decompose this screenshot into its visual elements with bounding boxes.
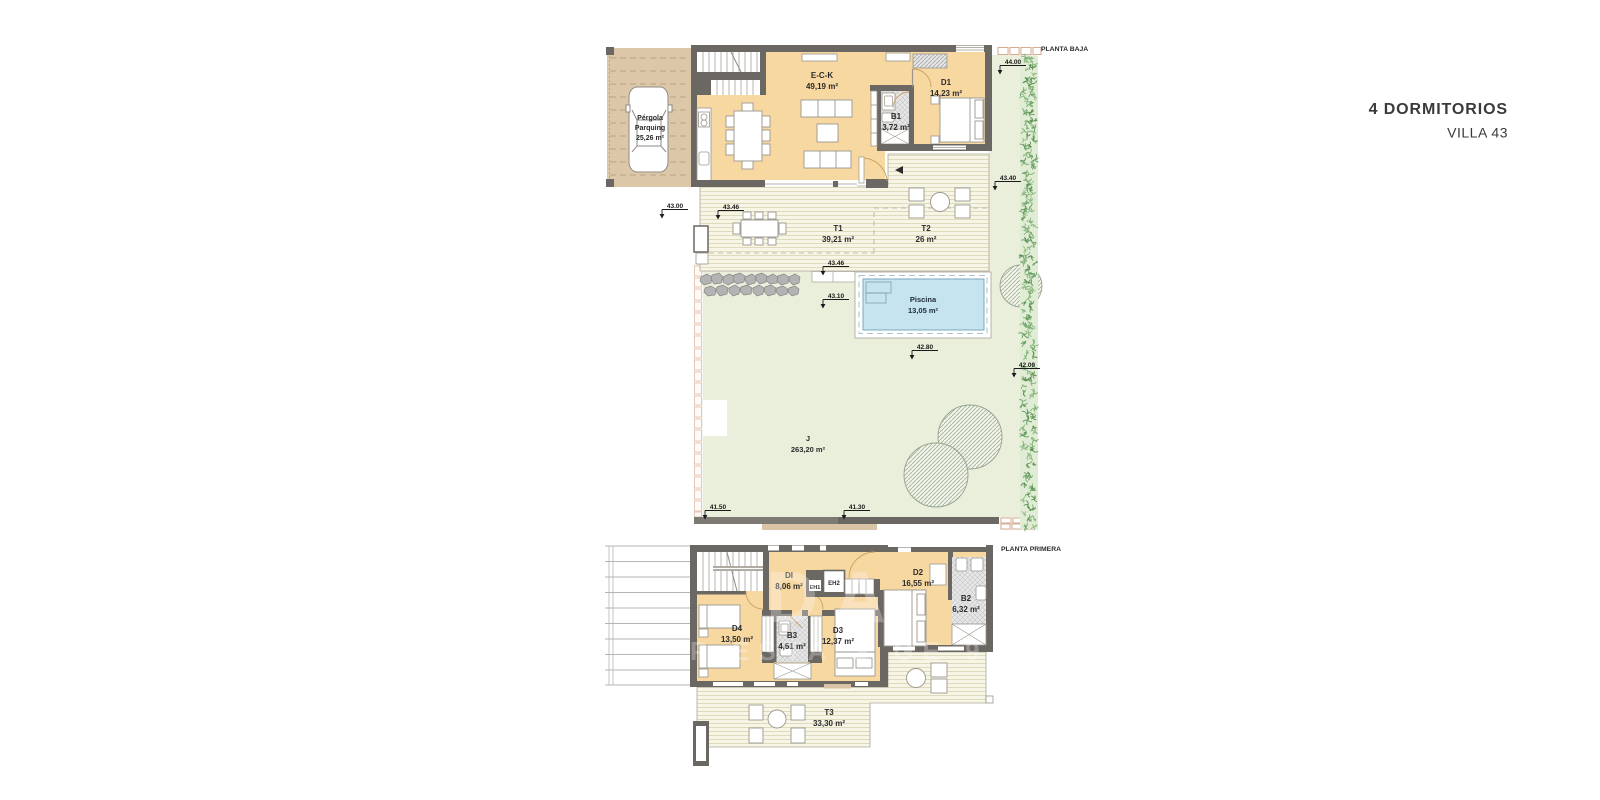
- svg-text:B2: B2: [961, 594, 972, 603]
- svg-text:VILLA 43: VILLA 43: [1447, 125, 1508, 141]
- svg-text:Pérgola: Pérgola: [637, 115, 663, 122]
- svg-text:PLANTA PRIMERA: PLANTA PRIMERA: [1001, 546, 1061, 553]
- svg-text:39,21 m²: 39,21 m²: [822, 235, 854, 244]
- svg-text:263,20 m²: 263,20 m²: [791, 445, 826, 454]
- svg-text:J: J: [806, 434, 810, 443]
- svg-text:T2: T2: [921, 224, 931, 233]
- svg-text:T3: T3: [824, 708, 834, 717]
- svg-text:43.40: 43.40: [1000, 175, 1017, 182]
- svg-text:T1: T1: [833, 224, 843, 233]
- svg-text:42.00: 42.00: [1019, 362, 1036, 369]
- svg-text:PLANTA BAJA: PLANTA BAJA: [1041, 46, 1088, 53]
- svg-text:E-C-K: E-C-K: [811, 71, 833, 80]
- svg-text:B1: B1: [891, 112, 902, 121]
- svg-text:14,23 m²: 14,23 m²: [930, 89, 962, 98]
- svg-text:43.46: 43.46: [723, 204, 740, 211]
- svg-text:D2: D2: [913, 568, 924, 577]
- svg-text:DA: DA: [766, 558, 902, 638]
- svg-text:41.50: 41.50: [710, 504, 727, 511]
- svg-text:13,05 m²: 13,05 m²: [908, 306, 939, 315]
- svg-text:25,26 m²: 25,26 m²: [636, 135, 665, 142]
- svg-text:6,32 m²: 6,32 m²: [952, 605, 980, 614]
- svg-text:33,30 m²: 33,30 m²: [813, 719, 845, 728]
- svg-text:D4: D4: [732, 624, 743, 633]
- svg-text:41.30: 41.30: [849, 504, 866, 511]
- svg-text:P ESTA S GE 9: P ESTA S GE 9: [690, 636, 989, 666]
- svg-text:43.10: 43.10: [828, 293, 845, 300]
- svg-text:Piscina: Piscina: [910, 295, 937, 304]
- svg-text:16,55 m²: 16,55 m²: [902, 579, 934, 588]
- svg-text:D1: D1: [941, 78, 952, 87]
- svg-text:3,72 m²: 3,72 m²: [882, 123, 910, 132]
- svg-text:43.46: 43.46: [828, 260, 845, 267]
- svg-text:43.00: 43.00: [667, 203, 684, 210]
- svg-text:42.80: 42.80: [917, 344, 934, 351]
- svg-text:Parquing: Parquing: [635, 125, 665, 132]
- svg-text:26 m²: 26 m²: [916, 235, 937, 244]
- svg-text:4 DORMITORIOS: 4 DORMITORIOS: [1369, 101, 1508, 118]
- svg-text:49,19 m²: 49,19 m²: [806, 82, 838, 91]
- svg-text:44.00: 44.00: [1005, 59, 1022, 66]
